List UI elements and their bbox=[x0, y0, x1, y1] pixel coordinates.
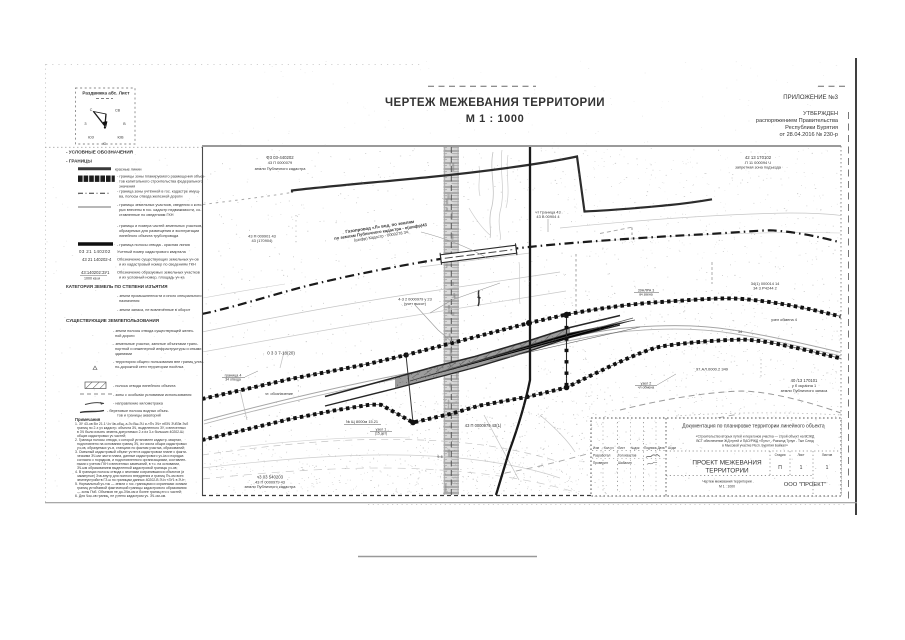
svg-text:ПРИЛОЖЕНИЕ №3: ПРИЛОЖЕНИЕ №3 bbox=[783, 94, 838, 101]
svg-text:«Строительство вторых путей и: «Строительство вторых путей и перегонов … bbox=[696, 435, 815, 439]
svg-text:ТЕРРИТОРИИ: ТЕРРИТОРИИ bbox=[705, 468, 749, 475]
svg-text:- зоны с особыми условиями исп: - зоны с особыми условиями использования bbox=[113, 393, 191, 397]
svg-text:34: 34 bbox=[738, 330, 742, 334]
svg-text:красные линии: красные линии bbox=[115, 168, 141, 172]
svg-text:земли Публичного запаса: земли Публичного запаса bbox=[781, 388, 828, 393]
svg-text:34 отвода: 34 отвода bbox=[225, 378, 241, 382]
svg-text:ЮВ: ЮВ bbox=[117, 136, 124, 140]
svg-text:1: 1 bbox=[826, 465, 829, 471]
svg-text:- граница полосы отвода - крас: - граница полосы отвода - красная линия bbox=[117, 243, 190, 247]
svg-text:Ю: Ю bbox=[103, 142, 107, 146]
svg-text:- береговые полосы водных о: - береговые полосы водных объек- bbox=[107, 409, 170, 413]
svg-text:43 П 0000979 43(1): 43 П 0000979 43(1) bbox=[465, 423, 502, 428]
svg-text:тов капитального строительства: тов капитального строительства федеральн… bbox=[119, 180, 203, 184]
svg-text:43 П 0000079: 43 П 0000079 bbox=[268, 160, 292, 165]
svg-text:узел обмена 4: узел обмена 4 bbox=[771, 317, 798, 322]
svg-text:- земельные участки, занятые о: - земельные участки, занятые объектами т… bbox=[113, 342, 199, 346]
svg-text:Стадия: Стадия bbox=[775, 453, 786, 457]
svg-text:6. Для Чок-ов границ, не учтен: 6. Для Чок-ов границ, не учтено кадастро… bbox=[75, 494, 166, 498]
svg-text:43 21 140202-4: 43 21 140202-4 bbox=[82, 257, 112, 262]
svg-text:ставленные по сведениям ГКН: ставленные по сведениям ГКН bbox=[119, 213, 174, 217]
svg-text:Лист: Лист bbox=[618, 446, 625, 450]
svg-text:З: З bbox=[84, 122, 86, 126]
svg-text:ной дороги: ной дороги bbox=[115, 334, 134, 338]
svg-text:97.АЛ.0000.2 349: 97.АЛ.0000.2 349 bbox=[696, 367, 729, 372]
svg-text:от 28.04.2016 № 230-р: от 28.04.2016 № 230-р bbox=[779, 132, 838, 138]
svg-text:М 1 : 1000: М 1 : 1000 bbox=[466, 113, 525, 125]
svg-text:Чертеж межевания территории: Чертеж межевания территории bbox=[702, 480, 751, 484]
svg-text:Шабалин: Шабалин bbox=[618, 461, 632, 465]
svg-text:№ Щ 8000м 15.21: № Щ 8000м 15.21 bbox=[346, 419, 378, 424]
svg-text:Республики Бурятия: Республики Бурятия bbox=[785, 125, 838, 131]
svg-text:Документация по планировке тер: Документация по планировке территории ли… bbox=[682, 423, 825, 430]
svg-text:Голохвастов: Голохвастов bbox=[618, 454, 637, 458]
svg-text:- земли запаса, не вовлечённые: - земли запаса, не вовлечённые в оборот bbox=[117, 308, 191, 312]
svg-text:М 1 : 1000: М 1 : 1000 bbox=[719, 485, 735, 489]
svg-text:чт. обозначение: чт. обозначение bbox=[265, 392, 293, 396]
svg-text:34 3 РЧ244 2: 34 3 РЧ244 2 bbox=[753, 286, 777, 291]
svg-text:Изм: Изм bbox=[593, 446, 599, 450]
svg-text:9-6: 9-6 bbox=[437, 455, 443, 459]
svg-text:1000 кв.м: 1000 кв.м bbox=[84, 277, 100, 281]
svg-text:Обозначение существующих земел: Обозначение существующих земельных уч-ов bbox=[117, 258, 199, 262]
svg-text:43 (170904): 43 (170904) bbox=[252, 238, 274, 243]
svg-text:- ГРАНИЦЫ: - ГРАНИЦЫ bbox=[66, 159, 92, 164]
svg-text:земли Публичного кадастра: земли Публичного кадастра bbox=[255, 166, 307, 171]
svg-text:ВСТ обеспечение ЖД путей и ПАО: ВСТ обеспечение ЖД путей и ПАО/РЖД «Путь… bbox=[696, 439, 813, 443]
svg-text:Подпись: Подпись bbox=[644, 446, 657, 450]
svg-text:- земли полосы отвода существу: - земли полосы отвода существующей желез… bbox=[113, 329, 195, 333]
svg-text:значения: значения bbox=[119, 185, 135, 189]
svg-text:зданиями: зданиями bbox=[115, 352, 132, 356]
svg-text:№док: №док bbox=[631, 446, 640, 450]
svg-text:- полоса отвода линейного объе: - полоса отвода линейного объекта bbox=[113, 384, 176, 388]
svg-text:ООО "ПРОЕКТ": ООО "ПРОЕКТ" bbox=[784, 482, 826, 488]
svg-text:образуемых для размещения и эк: образуемых для размещения и эксплуатации bbox=[119, 229, 199, 233]
svg-text:и их кадастровый номер по свед: и их кадастровый номер по сведениям ГКН bbox=[119, 263, 196, 267]
svg-text:Проверил: Проверил bbox=[593, 461, 608, 465]
svg-text:ва, полосы отвода железной дор: ва, полосы отвода железной дороги bbox=[119, 195, 182, 199]
svg-text:тов и границы акваторий: тов и границы акваторий bbox=[117, 414, 161, 418]
svg-text:ЧЕРТЕЖ МЕЖЕВАНИЯ ТЕРРИТОРИИ: ЧЕРТЕЖ МЕЖЕВАНИЯ ТЕРРИТОРИИ bbox=[385, 97, 605, 109]
svg-text:(15 дет): (15 дет) bbox=[375, 432, 387, 436]
svg-text:- граница зоны учтённой в гос.: - граница зоны учтённой в гос. кадастре … bbox=[117, 190, 201, 194]
svg-text:ЮЗ: ЮЗ bbox=[88, 136, 94, 140]
svg-text:43:140202:ЗУ1: 43:140202:ЗУ1 bbox=[81, 270, 110, 275]
svg-text:Асдм: Асдм bbox=[668, 446, 676, 450]
svg-text:назначения: назначения bbox=[119, 299, 139, 303]
svg-text:и их условный номер, площадь у: и их условный номер, площадь уч-ка bbox=[119, 276, 185, 280]
svg-text:Дата: Дата bbox=[658, 446, 665, 450]
svg-text:Разработал: Разработал bbox=[593, 454, 610, 458]
svg-text:КАТЕГОРИЯ ЗЕМЕЛЬ ПО СТЕПЕНИ ИЗ: КАТЕГОРИЯ ЗЕМЕЛЬ ПО СТЕПЕНИ ИЗЪЯТИЯ bbox=[66, 284, 168, 289]
svg-text:рых внесены в гос. кадастр нед: рых внесены в гос. кадастр недвижимости,… bbox=[119, 208, 202, 212]
svg-text:- УСЛОВНЫЕ ОБОЗНАЧЕНИЯ: - УСЛОВНЫЕ ОБОЗНАЧЕНИЯ bbox=[66, 150, 133, 155]
svg-text:земли Публичного кадастра: земли Публичного кадастра bbox=[245, 484, 297, 489]
svg-text:С: С bbox=[90, 108, 93, 112]
svg-text:- границы и номера частей земе: - границы и номера частей земельных учас… bbox=[117, 224, 202, 228]
svg-text:Раздвижка абс. Лист: Раздвижка абс. Лист bbox=[82, 90, 130, 96]
svg-text:- границы зоны планируемого ра: - границы зоны планируемого размещения о… bbox=[117, 175, 206, 179]
svg-text:Лист: Лист bbox=[798, 453, 805, 457]
svg-text:Листов: Листов bbox=[822, 453, 833, 457]
svg-text:- направление километража: - направление километража bbox=[113, 402, 164, 406]
svg-text:- границы земельных участков,: - границы земельных участков, сведения о… bbox=[117, 203, 203, 207]
svg-text:43 В 00904 4: 43 В 00904 4 bbox=[536, 214, 560, 219]
svg-text:чл обмена: чл обмена bbox=[638, 386, 655, 390]
svg-text:портной и инженерной инфрастру: портной и инженерной инфраструктуры и ин… bbox=[115, 347, 201, 351]
svg-text:0 3 3 7-18(20): 0 3 3 7-18(20) bbox=[267, 351, 295, 356]
svg-text:1: 1 bbox=[800, 465, 803, 471]
svg-text:но-дорожной сети территории по: но-дорожной сети территории посёлка bbox=[115, 365, 184, 369]
svg-text:УТВЕРЖДЕН: УТВЕРЖДЕН bbox=[803, 111, 838, 117]
svg-text:линейного объекта трубопровода: линейного объекта трубопровода bbox=[119, 234, 179, 238]
svg-text:Обозначение образуемых земельн: Обозначение образуемых земельных участко… bbox=[117, 271, 200, 275]
svg-text:Кол.уч: Кол.уч bbox=[604, 446, 614, 450]
svg-text:Учетный номер кадастрового ква: Учетный номер кадастрового квартала bbox=[117, 250, 187, 254]
svg-text:СУЩЕСТВУЮЩИЕ ЗЕМЛЕПОЛЬЗОВАНИЯ: СУЩЕСТВУЮЩИЕ ЗЕМЛЕПОЛЬЗОВАНИЯ bbox=[66, 318, 159, 323]
svg-text:СВ: СВ bbox=[115, 109, 121, 113]
svg-text:- земли промышленности и иного: - земли промышленности и иного специальн… bbox=[117, 294, 202, 298]
svg-text:- территория общего пользовани: - территория общего пользования вне гран… bbox=[113, 360, 205, 364]
svg-text:в Мысовой участке Респ. Буряти: в Мысовой участке Респ. Бурятия Байкал» bbox=[722, 444, 788, 448]
svg-text:03 21 140202: 03 21 140202 bbox=[79, 249, 111, 254]
svg-text:П: П bbox=[778, 465, 782, 471]
